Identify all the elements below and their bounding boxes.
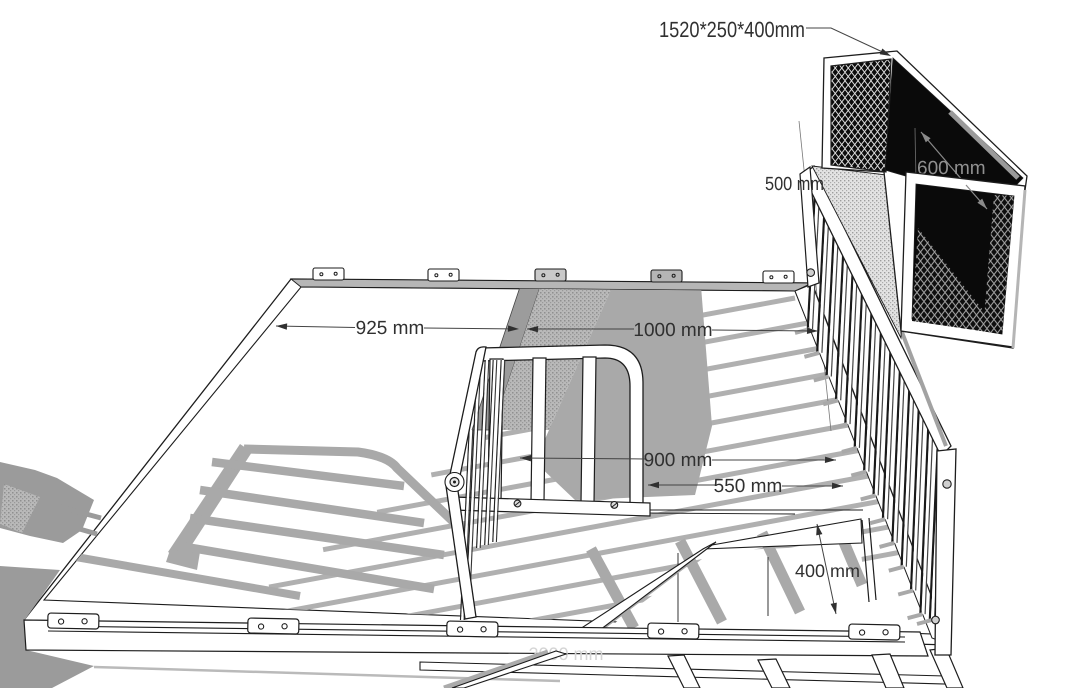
svg-text:500 mm: 500 mm: [765, 174, 824, 195]
svg-text:925 mm: 925 mm: [356, 318, 425, 339]
svg-text:1520*250*400mm: 1520*250*400mm: [659, 17, 805, 42]
svg-text:1000 mm: 1000 mm: [633, 320, 712, 341]
svg-text:400 mm: 400 mm: [795, 561, 860, 581]
svg-text:900 mm: 900 mm: [644, 450, 713, 471]
svg-text:550 mm: 550 mm: [714, 476, 783, 497]
